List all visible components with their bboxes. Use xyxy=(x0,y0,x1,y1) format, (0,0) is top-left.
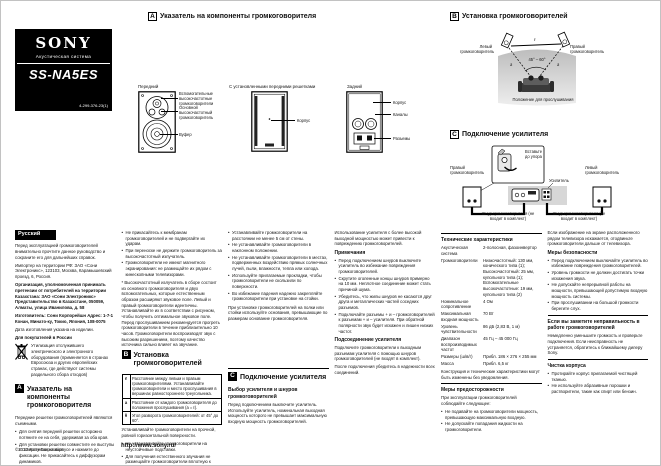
front-view-caption: Передний xyxy=(138,84,158,89)
brand-divider xyxy=(17,63,110,64)
divider xyxy=(548,359,649,360)
bullet: Убедитесь, что жилы шнуров не касаются д… xyxy=(335,294,436,311)
made-date-line: Дата изготовления указана на изделии. xyxy=(15,327,116,333)
part-number: 4-299-376-23(1) xyxy=(79,103,108,108)
bullet: Для установки решетки совместите ее выст… xyxy=(15,442,116,465)
bullet: Подключайте разъемы + и – громкоговорите… xyxy=(335,312,436,335)
speaker-front-diagram xyxy=(138,91,176,153)
section-c-header: C Подключение усилителя xyxy=(450,130,548,139)
bullet: Перед подключением выключайте усилитель … xyxy=(548,258,649,269)
bullet: При прослушивании на большой громкости б… xyxy=(548,300,649,311)
bullet: Уровень громкости не должен достигать то… xyxy=(548,270,649,281)
text-columns: Русский Перед эксплуатацией громкоговори… xyxy=(15,230,648,458)
grille-bar-left xyxy=(255,96,258,146)
bullet: Громкоговорители не имеют магнитного экр… xyxy=(122,260,223,277)
bullet: Не устанавливайте громкоговорители в нак… xyxy=(228,242,329,253)
bullet: Не прикасайтесь к мембранам громкоговори… xyxy=(122,230,223,247)
spec-note: Конструкция и технические характеристики… xyxy=(441,369,542,380)
handling-bullets: Не прикасайтесь к мембранам громкоговори… xyxy=(122,230,223,277)
grille-intro: Передние решетки громкоговорителей являю… xyxy=(15,415,116,426)
leader-cabinet-rear xyxy=(373,102,391,103)
table-row: ℓ Расстояние между левым и правым громко… xyxy=(122,375,222,398)
footnote-paragraph: * Высокочастотный излучатель в сборе сос… xyxy=(122,280,223,348)
divider xyxy=(441,233,542,234)
label-c-right-speaker: Левый громкоговоритель xyxy=(585,165,627,175)
col-section-a-icon: A xyxy=(15,384,24,393)
row-text: Расстояние между левым и правым громкого… xyxy=(130,375,222,398)
label-cabinet: Корпус xyxy=(297,118,322,123)
surface-paragraph: Устанавливайте громкоговорители на прочн… xyxy=(122,427,223,438)
spec-value: Прибл. 6,5 кг xyxy=(483,361,542,367)
label-c-left-speaker: Правый громкоговоритель xyxy=(450,165,490,175)
label-angle: 45° – 60° xyxy=(524,57,550,62)
right-speaker-icon xyxy=(558,32,570,47)
notes-heading: Примечания xyxy=(335,250,436,257)
bullet: Не устанавливайте громкоговорители в мес… xyxy=(228,255,329,272)
copyright-line: ©2012 Sony Corporation xyxy=(15,447,63,452)
notes-bullets: Перед подключением шнуров выключите усил… xyxy=(335,258,436,335)
spec-key: Максимальная входная мощность xyxy=(441,311,483,322)
malfunction-heading: Если вы заметите неправильность в работе… xyxy=(548,319,649,332)
label-terminals: Разъемы xyxy=(393,136,421,141)
sony-logo: SONY xyxy=(19,34,108,52)
grille-view-caption: С установленными передними решетками xyxy=(229,84,319,89)
amp-connect-subheading: Подсоединение усилителя xyxy=(335,337,436,344)
bullet: Протирайте корпус прилагаемой чистящей т… xyxy=(548,371,649,382)
brand-box: SONY Акустическая система SS-NA5ES 4-299… xyxy=(15,29,112,111)
weee-text: Утилизация отслужившего электрического и… xyxy=(31,343,116,377)
rear-view-caption: Задний xyxy=(347,84,362,89)
intro-paragraph: Перед эксплуатацией громкоговорителей вн… xyxy=(15,243,116,260)
label-listening-position: Положение для прослушивания xyxy=(501,97,585,102)
grille-bar-right xyxy=(282,96,285,146)
section-b-title: Установка громкоговорителей xyxy=(462,13,568,20)
installation-bullets: Устанавливайте громкоговорители на расст… xyxy=(228,230,329,302)
bullet: При переноске не держите громкоговорител… xyxy=(122,248,223,259)
spec-value: 2-полосная, фазоинвертор xyxy=(483,245,542,256)
amp-choice-text: Перед подключением выключите усилитель. … xyxy=(228,402,329,425)
col-section-b-header: B Установка громкоговорителей xyxy=(122,350,223,371)
leader-terminals xyxy=(374,138,391,139)
spec-value: 86 дБ (2,83 В, 1 м) xyxy=(483,324,542,335)
language-tab: Русский xyxy=(15,230,56,240)
amp-choice-subheading: Выбор усилителя и шнуров громкоговорител… xyxy=(228,387,329,400)
bullet: Во избежание падения надежно закрепляйте… xyxy=(228,291,329,302)
spec-value: 70 Вт xyxy=(483,311,542,322)
table-row: θ Угол разворота громкоговорителей: от 4… xyxy=(122,411,222,424)
spec-row: Масса Прибл. 6,5 кг xyxy=(441,361,542,367)
label-inset: Вставьте до упора xyxy=(525,149,543,159)
specs-heading: Технические характеристики xyxy=(441,237,542,244)
spec-row: Громкоговорители Низкочастотный: 130 мм,… xyxy=(441,258,542,298)
col-section-c-header: C Подключение усилителя xyxy=(228,372,329,385)
leader-woofer xyxy=(160,134,178,135)
bullet: Устанавливайте громкоговорители на расст… xyxy=(228,230,329,241)
tv-interference-paragraph: Если изображение на экране расположенног… xyxy=(548,230,649,247)
speaker-grille-diagram xyxy=(251,91,288,152)
brand-subtitle: Акустическая система xyxy=(19,54,108,59)
col-section-c-title: Подключение усилителя xyxy=(240,374,326,382)
section-a-header: A Указатель на компоненты громкоговорите… xyxy=(148,12,316,21)
label-cabinet-rear: Корпус xyxy=(393,100,421,105)
section-c-box-icon: C xyxy=(450,130,459,139)
weee-bin-icon xyxy=(15,343,28,361)
leader-ducts xyxy=(375,114,391,115)
placement-table: ℓ Расстояние между левым и правым громко… xyxy=(122,374,223,425)
col-section-b-icon: B xyxy=(122,350,131,359)
bullet: Перед подключением шнуров выключите усил… xyxy=(335,258,436,275)
sony-ss-na5es-leaflet: SONY Акустическая система SS-NA5ES 4-299… xyxy=(0,0,661,466)
bullet: Не допускайте попадания жидкости на гром… xyxy=(441,421,542,432)
bullet: Скрутите оголенные концы шнуров примерно… xyxy=(335,276,436,293)
kz-claims-paragraph: Организация, уполномоченная принимать пр… xyxy=(15,282,116,310)
russia-customers-line: Для покупателей в России xyxy=(15,335,116,341)
bullet: Используйте прилагаемые прокладки, чтобы… xyxy=(228,273,329,290)
row-key: θ xyxy=(122,411,130,424)
amplifier-icon xyxy=(512,189,551,201)
sony-url: http://www.sony.ru/ xyxy=(121,443,176,449)
left-speaker-rear-icon xyxy=(463,187,481,207)
right-speaker-rear-icon xyxy=(593,187,611,207)
row-text: Угол разворота громкоговорителей: от 45°… xyxy=(130,411,222,424)
safety-bullets: Перед подключением выключайте усилитель … xyxy=(548,258,649,312)
amp-connect-text: Подключите громкоговорители к выходным р… xyxy=(335,345,436,362)
column-2: Не прикасайтесь к мембранам громкоговори… xyxy=(122,230,223,458)
model-name: SS-NA5ES xyxy=(19,67,108,82)
stand-paragraph: При установке громкоговорителей на полки… xyxy=(228,305,329,322)
speaker-rear-diagram xyxy=(346,91,383,153)
column-4: Использование усилителя с более высокой … xyxy=(335,230,436,458)
label-right-speaker: Правый громкоговоритель xyxy=(570,44,604,54)
placement-diagram xyxy=(463,29,593,107)
section-a-title: Указатель на компоненты громкоговорителя xyxy=(160,13,316,20)
divider xyxy=(228,368,329,369)
importer-paragraph: Импортер на территории РФ: ЗАО «Сони Эле… xyxy=(15,263,116,280)
label-cord-right: Шнур громкоговорителя (не входит в компл… xyxy=(549,211,609,221)
spec-key: Размеры (ш/в/г) xyxy=(441,354,483,360)
spec-row: Диапазон воспроизводимых частот 45 Гц – … xyxy=(441,336,542,353)
precautions-bullets: Не подавайте на громкоговорители мощност… xyxy=(441,409,542,433)
table-row: a Расстояние от каждого громкоговорителя… xyxy=(122,398,222,411)
leader-main xyxy=(161,111,178,112)
col-section-b-title: Установка громкоговорителей xyxy=(134,352,223,368)
section-c-title: Подключение усилителя xyxy=(462,131,548,138)
section-a-box-icon: A xyxy=(148,12,157,21)
label-main-tweeter: Основной высокочастотный громкоговорител… xyxy=(179,105,221,120)
cleaning-heading: Чистка корпуса xyxy=(548,363,649,370)
divider xyxy=(548,315,649,316)
section-b-header: B Установка громкоговорителей xyxy=(450,12,568,21)
weee-block: Утилизация отслужившего электрического и… xyxy=(15,343,116,380)
spec-row: Размеры (ш/в/г) Прибл. 186 × 276 × 255 м… xyxy=(441,354,542,360)
col-section-a-title: Указатель на компоненты громкоговорителя xyxy=(27,386,116,409)
divider xyxy=(441,383,542,384)
spec-value: 45 Гц – 45 000 Гц xyxy=(483,336,542,353)
bullet: Не допускайте непрерывной работы на мощн… xyxy=(548,282,649,299)
precautions-heading: Меры предосторожности xyxy=(441,387,542,394)
spec-key: Акустическая система xyxy=(441,245,483,256)
label-distance-l: ℓ xyxy=(534,37,535,42)
leader-assist xyxy=(161,98,178,99)
spec-value: Прибл. 186 × 276 × 255 мм xyxy=(483,354,542,360)
column-6: Если изображение на экране расположенног… xyxy=(548,230,649,458)
spec-key: Масса xyxy=(441,361,483,367)
manufacturer-paragraph: Изготовитель: Сони Корпорейшн Адрес: 1-7… xyxy=(15,313,116,324)
spec-row: Максимальная входная мощность 70 Вт xyxy=(441,311,542,322)
spec-row: Номинальное сопротивление 4 Ом xyxy=(441,299,542,310)
spec-key: Уровень чувствительности xyxy=(441,324,483,335)
col-section-a-header: A Указатель на компоненты громкоговорите… xyxy=(15,384,116,412)
row-text: Расстояние от каждого громкоговорителя д… xyxy=(130,398,222,411)
label-distance-a1: a xyxy=(510,62,512,67)
column-5: Технические характеристики Акустическая … xyxy=(441,230,542,458)
col-section-c-icon: C xyxy=(228,372,237,381)
label-woofer: Вуфер xyxy=(179,132,209,137)
column-3: Устанавливайте громкоговорители на расст… xyxy=(228,230,329,458)
spec-key: Диапазон воспроизводимых частот xyxy=(441,336,483,353)
malfunction-text: Немедленно уменьшите громкость и проверь… xyxy=(548,333,649,356)
bullet: Не используйте абразивные порошки и раст… xyxy=(548,383,649,394)
row-key: ℓ xyxy=(122,375,130,398)
grille-logo-plate xyxy=(265,144,274,147)
spec-value: Низкочастотный: 130 мм, конического типа… xyxy=(483,258,542,298)
leader-cabinet xyxy=(271,120,295,121)
label-ducts: Каналы xyxy=(393,112,421,117)
check-connections-text: После подключения убедитесь в надежности… xyxy=(335,364,436,375)
spec-key: Громкоговорители xyxy=(441,258,483,298)
safety-heading: Меры безопасности xyxy=(548,250,649,257)
amp-power-warning: Использование усилителя с более высокой … xyxy=(335,230,436,247)
spec-key: Номинальное сопротивление xyxy=(441,299,483,310)
precautions-intro: При эксплуатации громкоговорителей соблю… xyxy=(441,395,542,406)
row-key: a xyxy=(122,398,130,411)
label-distance-a2: a xyxy=(557,62,559,67)
spec-row: Уровень чувствительности 86 дБ (2,83 В, … xyxy=(441,324,542,335)
label-left-speaker: Левый громкоговоритель xyxy=(460,44,492,54)
bullet: Для снятия передней решетки осторожно по… xyxy=(15,429,116,440)
spec-value: 4 Ом xyxy=(483,299,542,310)
column-1: Русский Перед эксплуатацией громкоговори… xyxy=(15,230,116,458)
label-cord-left: Шнур громкоговорителя (не входит в компл… xyxy=(478,211,538,221)
spec-row: Акустическая система 2-полосная, фазоинв… xyxy=(441,245,542,256)
bullet: Для получения естественного звучания не … xyxy=(122,454,223,466)
bullet: Не подавайте на громкоговорители мощност… xyxy=(441,409,542,420)
section-b-box-icon: B xyxy=(450,12,459,21)
cleaning-bullets: Протирайте корпус прилагаемой чистящей т… xyxy=(548,371,649,395)
label-amplifier: Усилитель xyxy=(549,178,579,183)
